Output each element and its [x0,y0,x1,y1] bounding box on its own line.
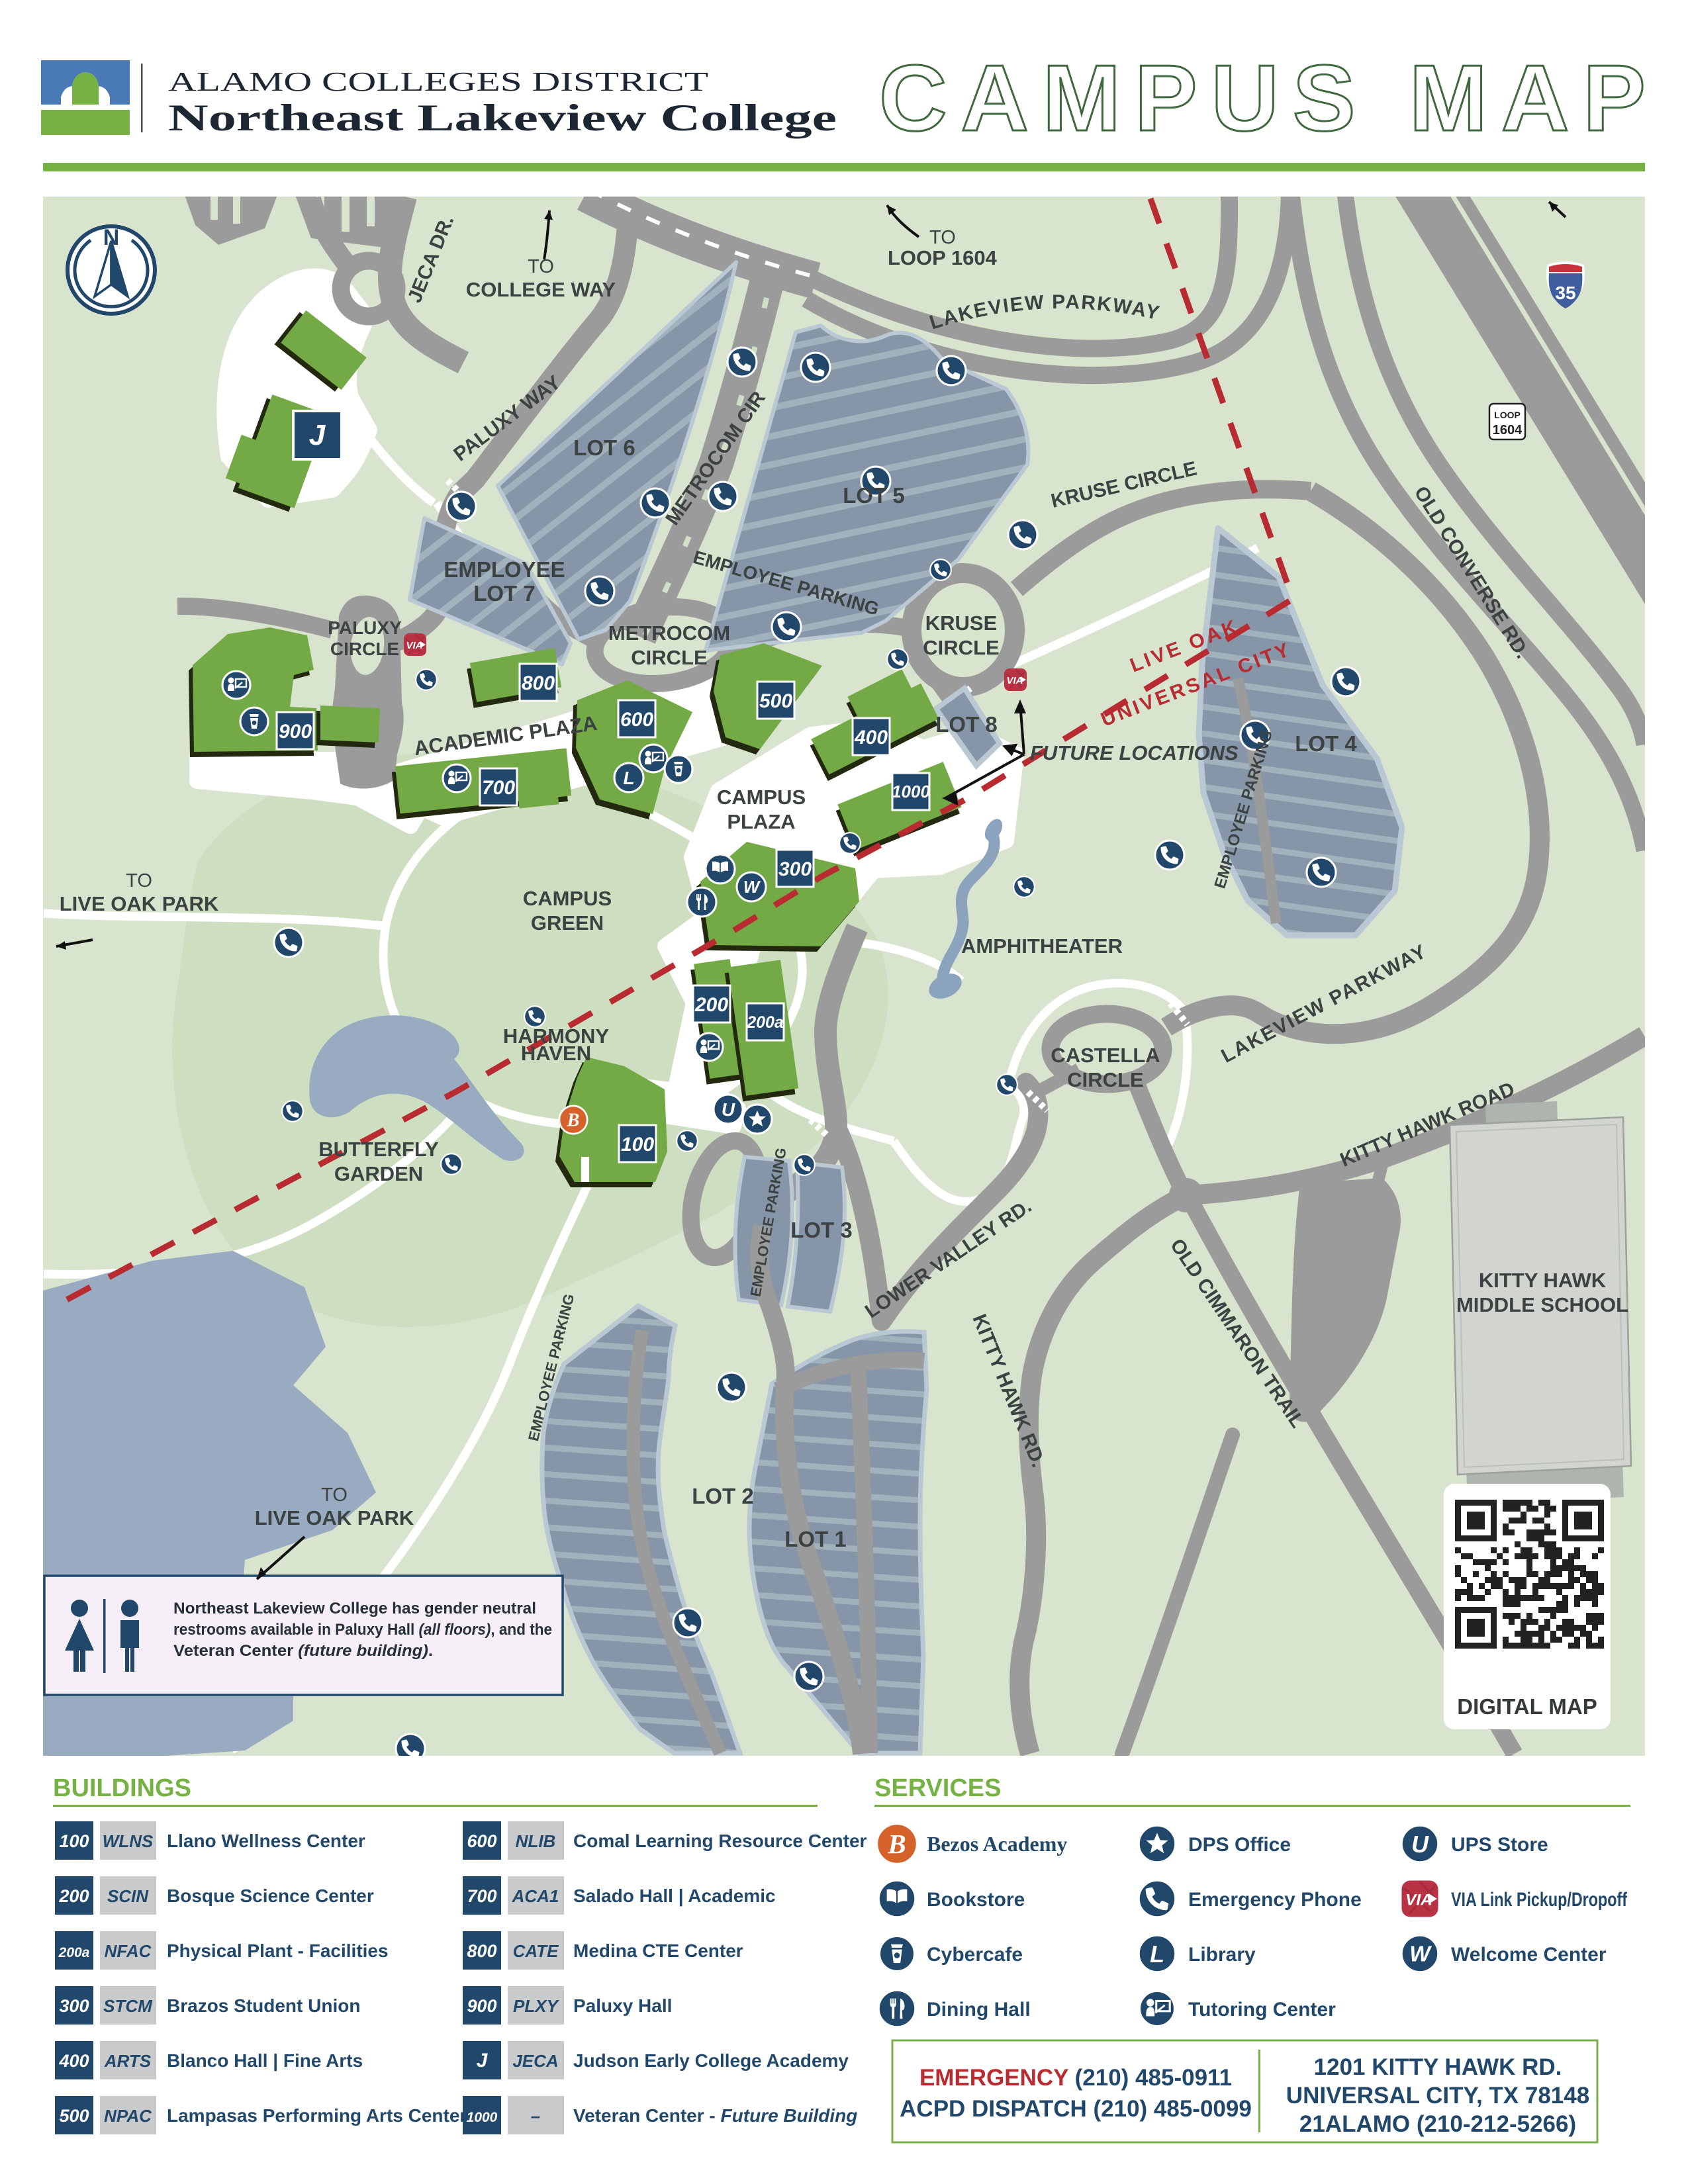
svg-text:400: 400 [854,727,888,749]
svg-text:J: J [309,419,326,451]
svg-text:Library: Library [1188,1944,1256,1966]
svg-text:CAMPUS: CAMPUS [717,786,806,809]
svg-text:LOOP 1604: LOOP 1604 [888,246,998,269]
svg-text:HAVEN: HAVEN [521,1042,591,1065]
svg-text:Northeast Lakeview College has: Northeast Lakeview College has gender ne… [173,1600,536,1617]
svg-text:21ALAMO (210-212-5266): 21ALAMO (210-212-5266) [1299,2111,1576,2137]
svg-text:Bezos Academy: Bezos Academy [927,1832,1067,1856]
svg-text:BUILDINGS: BUILDINGS [53,1774,191,1802]
svg-text:300: 300 [59,1996,89,2016]
svg-text:Veteran Center (future buildin: Veteran Center (future building). [173,1642,433,1660]
svg-text:1201 KITTY HAWK RD.: 1201 KITTY HAWK RD. [1314,2054,1562,2080]
svg-text:J: J [477,2050,489,2071]
svg-text:LOT 6: LOT 6 [573,435,635,460]
svg-text:METROCOM: METROCOM [608,621,730,645]
svg-text:100: 100 [59,1831,89,1851]
svg-text:KITTY HAWK: KITTY HAWK [1479,1269,1607,1292]
svg-text:ARTS: ARTS [104,2051,152,2071]
svg-text:CATE: CATE [513,1941,559,1961]
svg-text:DPS Office: DPS Office [1188,1834,1291,1856]
svg-text:500: 500 [759,690,792,712]
svg-text:Blanco Hall | Fine Arts: Blanco Hall | Fine Arts [167,2050,363,2071]
svg-text:VIA Link Pickup/Dropoff: VIA Link Pickup/Dropoff [1451,1889,1628,1911]
svg-text:100: 100 [621,1134,654,1156]
svg-text:LOT 2: LOT 2 [692,1484,754,1508]
svg-text:JECA: JECA [512,2051,558,2071]
svg-text:Tutoring Center: Tutoring Center [1188,1999,1336,2021]
svg-text:800: 800 [467,1941,496,1961]
svg-text:Cybercafe: Cybercafe [927,1944,1023,1966]
svg-text:EMERGENCY (210) 485-0911: EMERGENCY (210) 485-0911 [919,2065,1232,2091]
svg-text:CIRCLE: CIRCLE [923,636,999,659]
svg-text:Dining Hall: Dining Hall [927,1999,1031,2021]
svg-text:EMPLOYEE: EMPLOYEE [444,557,565,582]
svg-text:COLLEGE WAY: COLLEGE WAY [466,278,616,301]
svg-text:1000: 1000 [467,2110,498,2125]
svg-text:1604: 1604 [1493,423,1523,437]
svg-text:300: 300 [778,858,812,880]
svg-text:Llano Wellness Center: Llano Wellness Center [167,1831,365,1851]
svg-text:LIVE OAK PARK: LIVE OAK PARK [255,1506,414,1529]
svg-text:Judson Early College Academy: Judson Early College Academy [573,2050,849,2071]
svg-text:MIDDLE SCHOOL: MIDDLE SCHOOL [1456,1293,1628,1316]
svg-text:Physical Plant - Facilities: Physical Plant - Facilities [167,1940,389,1961]
svg-text:Paluxy Hall: Paluxy Hall [573,1995,672,2016]
svg-text:Welcome Center: Welcome Center [1451,1944,1607,1966]
svg-text:Lampasas Performing Arts Cente: Lampasas Performing Arts Center [167,2105,467,2126]
svg-text:GREEN: GREEN [531,911,604,934]
svg-text:PLXY: PLXY [513,1996,560,2016]
svg-text:SERVICES: SERVICES [874,1774,1001,1802]
svg-text:AMPHITHEATER: AMPHITHEATER [961,934,1123,958]
svg-text:WLNS: WLNS [103,1831,154,1851]
svg-text:LIVE OAK PARK: LIVE OAK PARK [60,892,219,915]
svg-text:200: 200 [58,1886,89,1906]
svg-text:STCM: STCM [103,1996,153,2016]
svg-text:SCIN: SCIN [107,1886,149,1906]
svg-text:CAMPUS MAP: CAMPUS MAP [879,46,1646,151]
svg-text:600: 600 [467,1831,496,1851]
svg-text:Emergency Phone: Emergency Phone [1188,1889,1362,1911]
svg-text:TO: TO [528,256,554,277]
svg-text:200a: 200a [58,1945,90,1960]
svg-text:200a: 200a [746,1013,784,1032]
svg-text:Medina CTE Center: Medina CTE Center [573,1940,743,1961]
svg-text:UPS Store: UPS Store [1451,1834,1548,1856]
svg-text:LOT 3: LOT 3 [790,1218,853,1242]
svg-text:Salado Hall | Academic: Salado Hall | Academic [573,1886,776,1906]
svg-text:CIRCLE: CIRCLE [330,639,399,659]
svg-text:900: 900 [279,721,312,743]
svg-text:TO: TO [929,227,956,248]
svg-text:Comal Learning Resource Center: Comal Learning Resource Center [573,1831,867,1851]
svg-text:BUTTERFLY: BUTTERFLY [318,1138,439,1161]
svg-text:CASTELLA: CASTELLA [1051,1044,1160,1067]
svg-text:LOT 7: LOT 7 [473,581,536,606]
svg-text:PLAZA: PLAZA [727,810,795,833]
svg-text:500: 500 [59,2106,89,2126]
svg-text:NPAC: NPAC [104,2106,152,2126]
svg-text:CIRCLE: CIRCLE [631,646,707,669]
svg-text:UNIVERSAL CITY, TX 78148: UNIVERSAL CITY, TX 78148 [1286,2083,1589,2109]
svg-text:CIRCLE: CIRCLE [1067,1068,1143,1091]
svg-text:200: 200 [694,994,728,1016]
svg-text:PALUXY: PALUXY [328,617,402,638]
svg-text:800: 800 [522,672,555,694]
svg-text:700: 700 [467,1886,496,1906]
svg-text:FUTURE LOCATIONS: FUTURE LOCATIONS [1030,741,1239,764]
svg-text:ACPD DISPATCH (210) 485-0099: ACPD DISPATCH (210) 485-0099 [900,2096,1252,2122]
svg-text:–: – [531,2106,540,2126]
svg-text:LOOP: LOOP [1494,410,1521,420]
svg-text:restrooms available in Paluxy: restrooms available in Paluxy Hall (all … [173,1621,552,1639]
svg-text:NLIB: NLIB [516,1831,556,1851]
svg-text:Bosque Science Center: Bosque Science Center [167,1886,374,1906]
svg-text:35: 35 [1555,283,1575,303]
svg-text:900: 900 [467,1996,496,2016]
svg-text:TO: TO [321,1484,348,1506]
svg-text:ALAMO COLLEGES DISTRICT: ALAMO COLLEGES DISTRICT [168,66,708,97]
svg-text:NFAC: NFAC [105,1941,152,1961]
svg-text:LOT 1: LOT 1 [784,1527,847,1551]
svg-text:DIGITAL MAP: DIGITAL MAP [1457,1694,1597,1719]
svg-text:Veteran Center - Future Buildi: Veteran Center - Future Building [573,2105,857,2126]
svg-text:TO: TO [126,870,152,891]
svg-text:600: 600 [620,709,653,731]
svg-text:400: 400 [58,2051,89,2071]
svg-text:Northeast Lakeview College: Northeast Lakeview College [168,97,837,139]
svg-text:Brazos Student Union: Brazos Student Union [167,1995,360,2016]
svg-text:Bookstore: Bookstore [927,1889,1025,1911]
svg-text:1000: 1000 [892,782,930,801]
svg-text:KRUSE: KRUSE [925,612,998,635]
svg-text:CAMPUS: CAMPUS [523,887,612,910]
svg-text:LOT 8: LOT 8 [935,712,998,737]
svg-text:ACA1: ACA1 [512,1886,559,1906]
svg-text:LOT 5: LOT 5 [843,483,905,508]
svg-text:700: 700 [482,777,515,799]
svg-text:GARDEN: GARDEN [334,1162,423,1185]
svg-text:LOT 4: LOT 4 [1295,731,1357,756]
